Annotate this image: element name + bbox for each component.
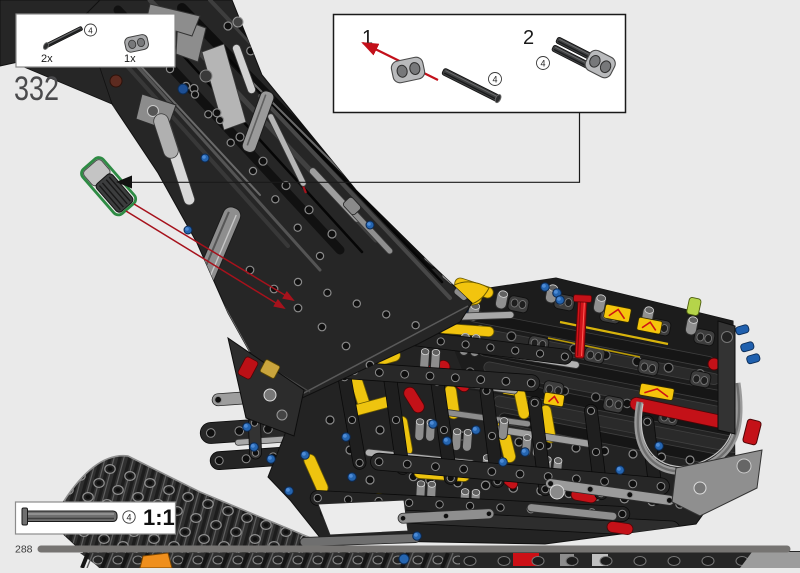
svg-text:4: 4 <box>492 75 497 85</box>
svg-text:4: 4 <box>540 59 545 69</box>
svg-text:332: 332 <box>14 70 59 108</box>
svg-text:1:1: 1:1 <box>143 505 175 530</box>
svg-text:2x: 2x <box>41 53 53 65</box>
svg-text:2: 2 <box>523 27 534 49</box>
svg-text:1x: 1x <box>124 53 136 65</box>
svg-text:288: 288 <box>15 544 33 556</box>
svg-text:4: 4 <box>88 26 93 35</box>
svg-text:4: 4 <box>126 512 131 522</box>
